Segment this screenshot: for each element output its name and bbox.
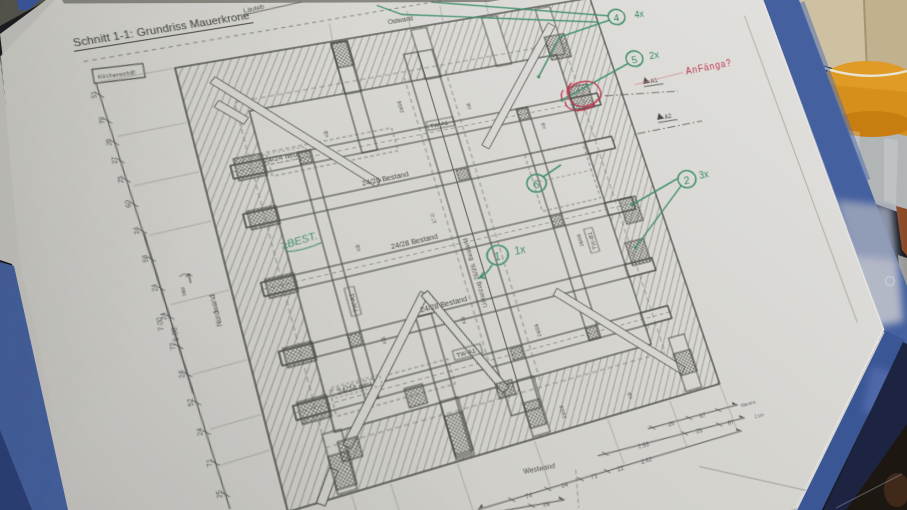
svg-text:60: 60 bbox=[125, 200, 134, 208]
svg-text:52: 52 bbox=[187, 398, 196, 407]
svg-text:51: 51 bbox=[90, 90, 98, 98]
svg-text:78: 78 bbox=[98, 116, 107, 124]
svg-text:71: 71 bbox=[206, 458, 215, 468]
svg-text:26: 26 bbox=[105, 138, 114, 146]
svg-text:58: 58 bbox=[142, 254, 151, 263]
svg-text:24: 24 bbox=[151, 283, 160, 292]
svg-text:25: 25 bbox=[117, 175, 126, 183]
svg-text:27: 27 bbox=[111, 156, 120, 164]
svg-text:24: 24 bbox=[196, 427, 205, 437]
svg-text:24: 24 bbox=[178, 369, 187, 378]
svg-text:24: 24 bbox=[133, 226, 142, 235]
